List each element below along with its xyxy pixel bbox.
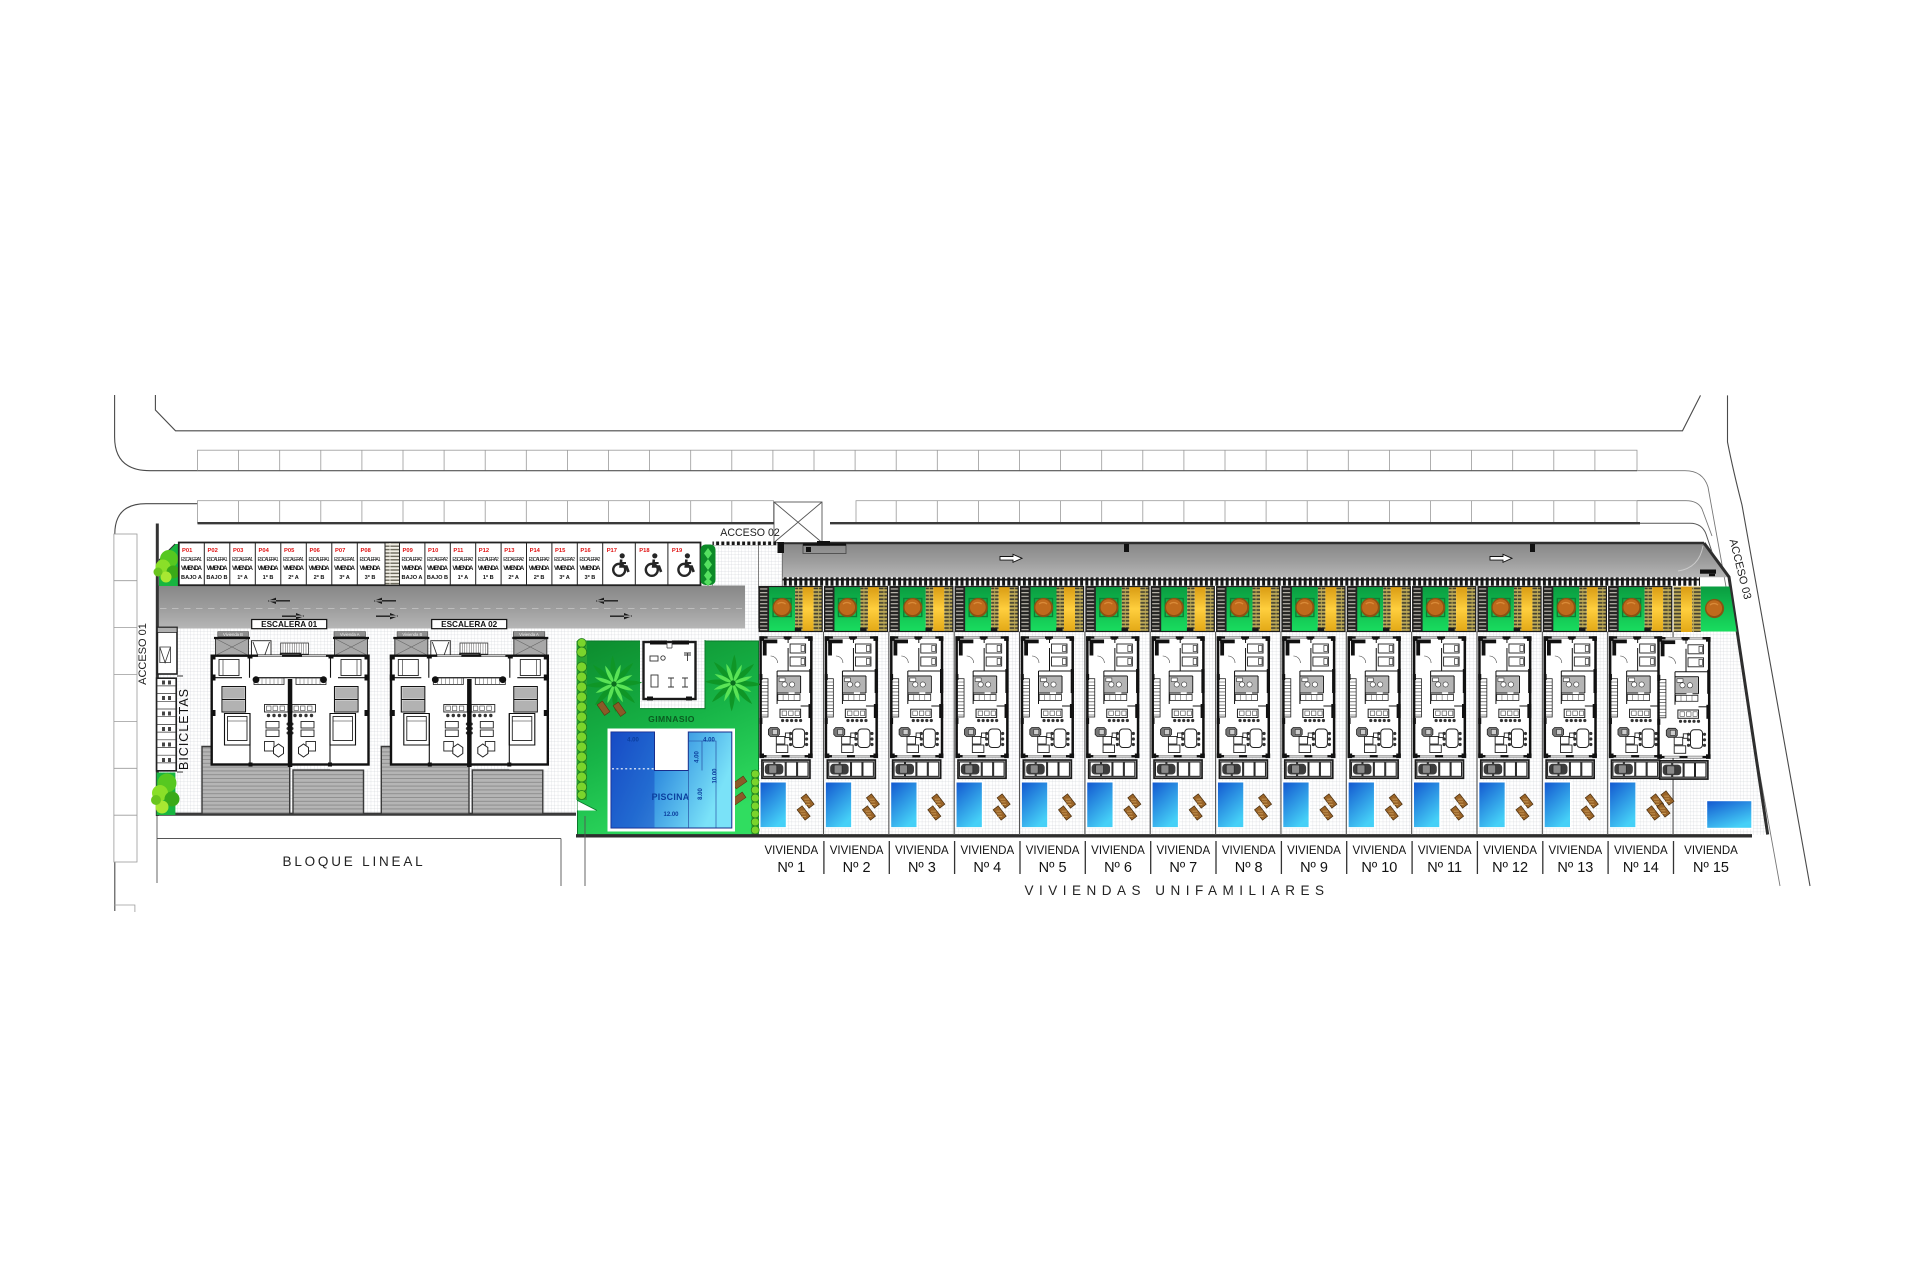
svg-text:BAJO A: BAJO A — [181, 575, 202, 581]
svg-text:P10: P10 — [428, 548, 438, 554]
svg-text:PISCINA: PISCINA — [652, 792, 690, 802]
svg-text:VIVIENDA: VIVIENDA — [402, 566, 424, 572]
svg-text:BAJO B: BAJO B — [427, 575, 448, 581]
svg-text:8.00: 8.00 — [698, 788, 704, 800]
svg-text:ESCALERA 2: ESCALERA 2 — [478, 557, 499, 563]
svg-text:P04: P04 — [259, 548, 270, 554]
svg-text:VIVIENDA: VIVIENDA — [427, 566, 449, 572]
svg-text:ESCALERA 2: ESCALERA 2 — [554, 557, 575, 563]
svg-text:VIVIENDA: VIVIENDA — [529, 566, 551, 572]
svg-text:3º A: 3º A — [559, 575, 570, 581]
svg-text:3º B: 3º B — [365, 575, 376, 581]
svg-text:P19: P19 — [672, 548, 683, 554]
svg-text:ESCALERA 1: ESCALERA 1 — [258, 557, 279, 563]
svg-text:VIVIENDA: VIVIENDA — [334, 566, 356, 572]
svg-text:ACCESO 02: ACCESO 02 — [720, 527, 780, 539]
svg-text:VIVIENDA: VIVIENDA — [309, 566, 331, 572]
svg-text:Nº 9: Nº 9 — [1300, 860, 1328, 876]
svg-text:VIVIENDA: VIVIENDA — [764, 845, 818, 857]
svg-text:ESCALERA 1: ESCALERA 1 — [207, 557, 228, 563]
svg-text:VIVIENDA: VIVIENDA — [1614, 845, 1668, 857]
svg-text:P09: P09 — [403, 548, 414, 554]
svg-text:2º A: 2º A — [508, 575, 519, 581]
svg-text:VIVIENDA: VIVIENDA — [207, 566, 229, 572]
svg-text:VIVIENDA: VIVIENDA — [258, 566, 280, 572]
svg-text:VIVIENDA: VIVIENDA — [1483, 845, 1537, 857]
svg-text:2º B: 2º B — [534, 575, 545, 581]
svg-text:VIVIENDA: VIVIENDA — [1549, 845, 1603, 857]
svg-text:VIVIENDA: VIVIENDA — [503, 566, 525, 572]
svg-text:Nº 7: Nº 7 — [1169, 860, 1197, 876]
svg-text:Nº 14: Nº 14 — [1623, 860, 1659, 876]
svg-text:Nº 11: Nº 11 — [1427, 860, 1462, 876]
svg-text:4.00: 4.00 — [627, 738, 639, 744]
svg-text:ESCALERA 2: ESCALERA 2 — [452, 557, 473, 563]
svg-text:VIVIENDA: VIVIENDA — [1091, 845, 1145, 857]
svg-text:ESCALERA 1: ESCALERA 1 — [232, 557, 253, 563]
svg-text:ESCALERA 1: ESCALERA 1 — [309, 557, 330, 563]
svg-text:VIVIENDA: VIVIENDA — [232, 566, 254, 572]
svg-text:P15: P15 — [555, 548, 566, 554]
svg-text:BAJO A: BAJO A — [402, 575, 423, 581]
svg-text:Nº 1: Nº 1 — [777, 860, 805, 876]
svg-text:VIVIENDA: VIVIENDA — [283, 566, 305, 572]
svg-text:VIVIENDA: VIVIENDA — [895, 845, 949, 857]
svg-text:ESCALERA 2: ESCALERA 2 — [503, 557, 524, 563]
svg-text:VIVIENDA: VIVIENDA — [1684, 845, 1738, 857]
svg-text:VIVIENDA: VIVIENDA — [452, 566, 474, 572]
svg-text:4.00: 4.00 — [703, 738, 715, 744]
svg-text:1º A: 1º A — [237, 575, 248, 581]
svg-text:1º B: 1º B — [263, 575, 274, 581]
svg-text:ESCALERA 01: ESCALERA 01 — [261, 620, 318, 629]
svg-text:VIVIENDA: VIVIENDA — [1287, 845, 1341, 857]
svg-text:P07: P07 — [335, 548, 345, 554]
svg-text:P01: P01 — [182, 548, 193, 554]
svg-text:Nº 13: Nº 13 — [1557, 860, 1593, 876]
svg-text:Nº 2: Nº 2 — [843, 860, 871, 876]
svg-text:VIVIENDA: VIVIENDA — [1418, 845, 1472, 857]
svg-text:Nº 12: Nº 12 — [1492, 860, 1528, 876]
svg-text:Nº 3: Nº 3 — [908, 860, 936, 876]
svg-text:VIVIENDAS UNIFAMILIARES: VIVIENDAS UNIFAMILIARES — [1024, 883, 1329, 898]
svg-text:VIVIENDA: VIVIENDA — [554, 566, 576, 572]
svg-text:P13: P13 — [504, 548, 515, 554]
svg-text:P03: P03 — [233, 548, 244, 554]
svg-text:BAJO B: BAJO B — [206, 575, 227, 581]
svg-text:VIVIENDA: VIVIENDA — [1222, 845, 1276, 857]
svg-text:ESCALERA 1: ESCALERA 1 — [181, 557, 202, 563]
svg-text:1º B: 1º B — [483, 575, 494, 581]
svg-text:2º B: 2º B — [314, 575, 325, 581]
svg-text:BICICLETAS: BICICLETAS — [177, 688, 191, 770]
svg-text:10.00: 10.00 — [713, 768, 719, 784]
svg-text:Nº 15: Nº 15 — [1693, 860, 1729, 876]
svg-text:P11: P11 — [453, 548, 464, 554]
svg-text:3º A: 3º A — [339, 575, 350, 581]
svg-text:ESCALERA 2: ESCALERA 2 — [427, 557, 448, 563]
svg-text:1º A: 1º A — [458, 575, 469, 581]
svg-text:P06: P06 — [310, 548, 321, 554]
svg-text:VIVIENDA: VIVIENDA — [960, 845, 1014, 857]
svg-text:P17: P17 — [607, 548, 617, 554]
svg-text:VIVIENDA: VIVIENDA — [181, 566, 203, 572]
svg-text:Nº 8: Nº 8 — [1235, 860, 1263, 876]
svg-text:VIVIENDA: VIVIENDA — [1353, 845, 1407, 857]
svg-text:Nº 4: Nº 4 — [973, 860, 1001, 876]
svg-text:GIMNASIO: GIMNASIO — [648, 714, 695, 724]
svg-text:4.00: 4.00 — [695, 751, 701, 763]
svg-text:VIVIENDA: VIVIENDA — [579, 566, 601, 572]
svg-text:P12: P12 — [479, 548, 489, 554]
svg-text:ESCALERA 2: ESCALERA 2 — [579, 557, 600, 563]
svg-text:P02: P02 — [208, 548, 218, 554]
svg-text:ESCALERA 2: ESCALERA 2 — [402, 557, 423, 563]
svg-text:P05: P05 — [284, 548, 295, 554]
svg-text:ESCALERA 1: ESCALERA 1 — [334, 557, 355, 563]
svg-text:VIVIENDA: VIVIENDA — [1156, 845, 1210, 857]
svg-text:VIVIENDA: VIVIENDA — [830, 845, 884, 857]
svg-text:ESCALERA 02: ESCALERA 02 — [441, 620, 498, 629]
svg-text:VIVIENDA: VIVIENDA — [478, 566, 500, 572]
svg-text:3º B: 3º B — [585, 575, 596, 581]
svg-text:P08: P08 — [361, 548, 372, 554]
svg-text:ESCALERA 2: ESCALERA 2 — [529, 557, 550, 563]
svg-text:ESCALERA 1: ESCALERA 1 — [283, 557, 304, 563]
svg-text:P14: P14 — [530, 548, 541, 554]
svg-text:VIVIENDA: VIVIENDA — [360, 566, 382, 572]
svg-text:ESCALERA 1: ESCALERA 1 — [360, 557, 381, 563]
svg-text:VIVIENDA: VIVIENDA — [1026, 845, 1080, 857]
svg-text:2º A: 2º A — [288, 575, 299, 581]
svg-text:BLOQUE LINEAL: BLOQUE LINEAL — [283, 854, 426, 869]
svg-text:Nº 5: Nº 5 — [1039, 860, 1067, 876]
svg-text:Nº 10: Nº 10 — [1361, 860, 1397, 876]
svg-text:ACCESO 01: ACCESO 01 — [137, 623, 149, 685]
svg-text:P18: P18 — [639, 548, 650, 554]
svg-text:12.00: 12.00 — [663, 812, 679, 818]
svg-text:Nº 6: Nº 6 — [1104, 860, 1132, 876]
svg-text:P16: P16 — [580, 548, 591, 554]
